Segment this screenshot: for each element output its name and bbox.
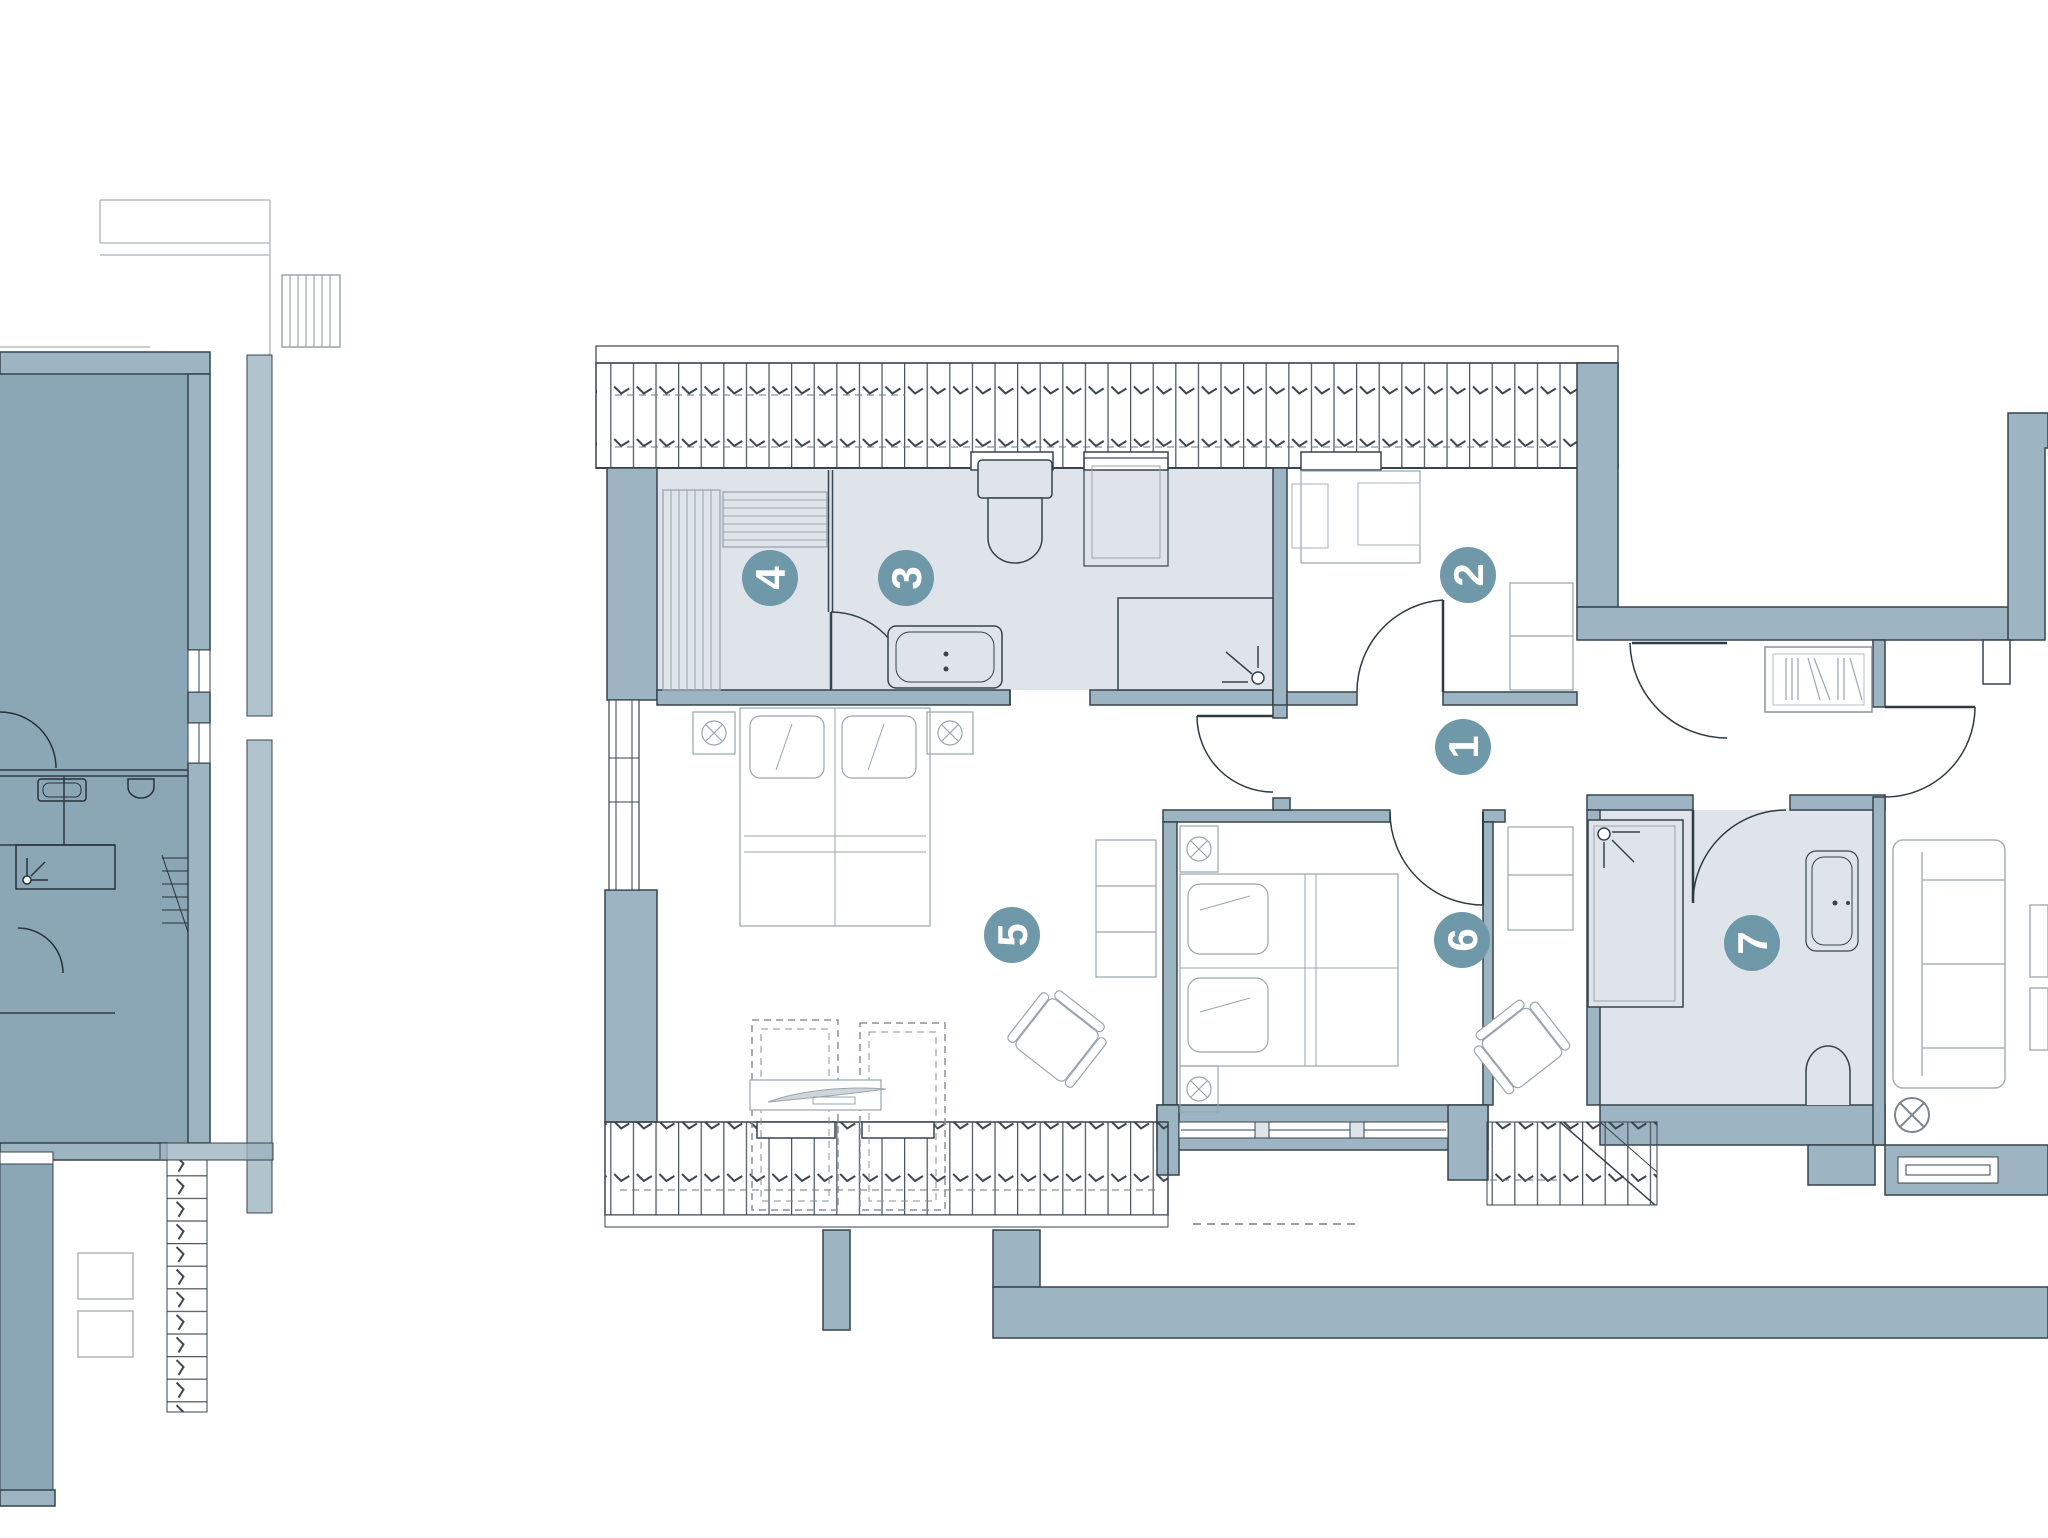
left-lower-wall	[0, 1490, 55, 1506]
shelf-room6	[1508, 827, 1573, 930]
shower-room3	[1118, 598, 1273, 690]
left-roof-hatch	[167, 1160, 207, 1412]
bed-room5	[740, 708, 930, 926]
roof-hatch-gap	[597, 364, 610, 467]
main-unit	[596, 346, 2048, 1338]
room-marker-7[interactable]: 7	[1724, 915, 1780, 971]
bathtub-room7	[1806, 851, 1858, 951]
roof-edge-strip-top	[596, 346, 1618, 363]
room-marker-2[interactable]: 2	[1440, 547, 1496, 603]
room-marker-3-label: 3	[883, 566, 930, 589]
roof-edge-strip-bottom	[605, 1215, 1168, 1227]
shelf-room5	[1096, 840, 1156, 977]
wardrobe-hallway	[1765, 647, 1872, 712]
room-marker-2-label: 2	[1445, 563, 1492, 586]
left-building	[0, 200, 340, 1506]
floor-plan-svg: 1 2 3 4 5 6 7	[0, 0, 2048, 1538]
room-marker-5[interactable]: 5	[984, 907, 1040, 963]
armchair-room5	[1006, 982, 1115, 1089]
desk-room2	[1292, 471, 1420, 563]
adjacent-unit-floor	[0, 374, 188, 1143]
sofa-right-room	[1893, 840, 2005, 1088]
nightstand-lamp-room5-right	[927, 712, 973, 754]
left-lower-room	[0, 1160, 53, 1490]
shower-room7	[1588, 820, 1683, 1007]
room-marker-7-label: 7	[1729, 931, 1776, 954]
right-room-partial-furniture	[2030, 905, 2048, 1050]
floor-plan-page: 1 2 3 4 5 6 7	[0, 0, 2048, 1538]
room-marker-1[interactable]: 1	[1435, 719, 1491, 775]
toilet-icon-left-unit	[128, 779, 154, 798]
room6-bay-window	[1179, 1122, 1448, 1138]
room-marker-1-label: 1	[1440, 735, 1487, 758]
nightstand-lamp-room6-top	[1180, 826, 1218, 872]
armchair-room6	[1466, 992, 1572, 1096]
left-lower-window	[0, 1152, 53, 1164]
table-room5	[750, 1080, 886, 1110]
toilet-icon-room7	[1806, 1046, 1850, 1105]
room5-window	[609, 700, 639, 890]
right-room-window	[1898, 1157, 1998, 1183]
left-lower-furniture	[78, 1253, 133, 1357]
wall-notch	[1983, 640, 2010, 684]
room-marker-4-label: 4	[747, 566, 794, 590]
nightstand-lamp-room5-left	[693, 712, 735, 754]
floor-drain-icon	[1895, 1098, 1929, 1132]
bathtub-room3	[888, 626, 1002, 688]
stairs-main	[1487, 1122, 1657, 1205]
room-marker-3[interactable]: 3	[878, 550, 934, 606]
room-marker-4[interactable]: 4	[742, 550, 798, 606]
left-railing	[282, 275, 340, 347]
room-marker-5-label: 5	[989, 923, 1036, 946]
room-marker-6[interactable]: 6	[1434, 912, 1490, 968]
room-marker-6-label: 6	[1439, 928, 1486, 951]
bed-room6	[1180, 874, 1398, 1066]
dresser-room2	[1510, 583, 1573, 690]
